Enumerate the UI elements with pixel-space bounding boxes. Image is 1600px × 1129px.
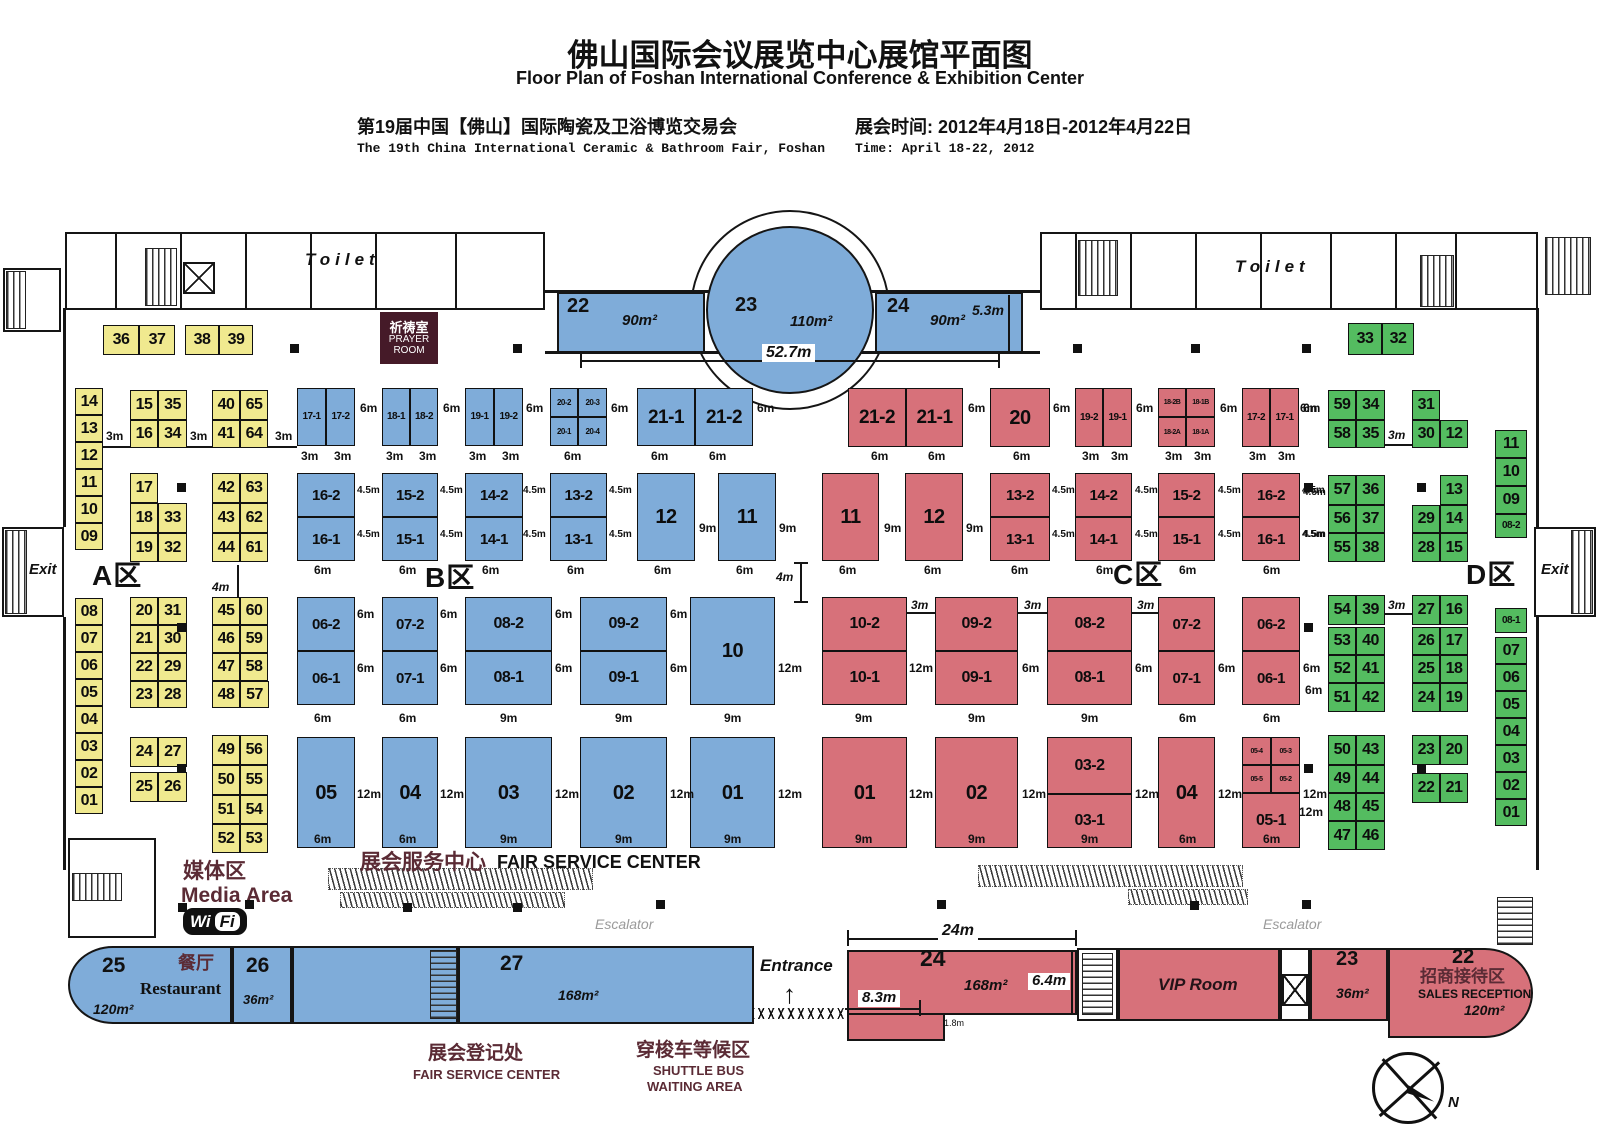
booth-b-16-1: 16-1 <box>297 517 355 561</box>
dim-tick <box>794 601 808 603</box>
prayer-room-en2: ROOM <box>393 346 424 356</box>
dimension-label: 4m <box>212 581 229 593</box>
dimension-label: 9m <box>1081 833 1098 845</box>
booth-a-54: 54 <box>240 795 268 824</box>
stairs-icon <box>1497 897 1533 945</box>
zone-c-title: C区 <box>1113 560 1163 591</box>
wall <box>1195 234 1197 308</box>
dimension-label: 6m <box>1096 564 1113 576</box>
booth-a-44: 44 <box>212 533 240 562</box>
dim-24m: 24m <box>938 922 978 940</box>
pillar <box>1073 344 1082 353</box>
hall-23b-area: 36m² <box>1336 986 1369 1001</box>
fair-name-en: The 19th China International Ceramic & B… <box>357 142 825 156</box>
hall-26-area: 36m² <box>243 993 273 1007</box>
booth-b-21-1: 21-1 <box>637 388 695 446</box>
booth-b-15-1: 15-1 <box>382 517 438 561</box>
booth-a-35: 35 <box>158 390 187 420</box>
dimension-label: 6m <box>1011 564 1028 576</box>
dimension-label: 6m <box>314 564 331 576</box>
dimension-label: 4.5m <box>357 486 380 496</box>
stairs-icon <box>1420 255 1454 307</box>
booth-a-25: 25 <box>130 772 158 802</box>
booth-a-28: 28 <box>158 681 187 708</box>
booth-a-24: 24 <box>130 737 158 767</box>
booth-c-11: 11 <box>822 473 879 561</box>
booth-b-21-2: 21-2 <box>695 388 753 446</box>
booth-a-64: 64 <box>240 420 268 448</box>
booth-a-61: 61 <box>240 533 268 562</box>
booth-d-40: 40 <box>1356 627 1385 655</box>
booth-a-12: 12 <box>75 442 103 469</box>
booth-c-13-2: 13-2 <box>990 473 1050 517</box>
entrance-label: Entrance <box>760 957 833 976</box>
dimension-label: 9m <box>966 522 983 534</box>
wall <box>1395 234 1397 308</box>
booth-d-43: 43 <box>1356 735 1385 765</box>
booth-c-19-1: 19-1 <box>1103 388 1132 447</box>
dimension-label: 6m <box>1300 402 1317 414</box>
sales-reception-cn: 招商接待区 <box>1420 968 1505 987</box>
wall <box>455 234 457 308</box>
booth-c-16-1: 16-1 <box>1242 517 1300 561</box>
wall <box>1075 234 1077 308</box>
hall-23-area: 110m² <box>790 314 832 331</box>
dimension-label: 3m <box>1024 599 1041 611</box>
booth-d-41: 41 <box>1356 655 1385 683</box>
booth-b-14-1: 14-1 <box>465 517 523 561</box>
elevator-icon <box>1282 974 1308 1006</box>
booth-b-17-2: 17-2 <box>326 388 355 446</box>
dimension-label: 6m <box>1263 564 1280 576</box>
pillar <box>513 344 522 353</box>
hall-23-circle <box>706 226 874 394</box>
dimension-label: 12m <box>1135 788 1159 800</box>
dimension-label: 6m <box>1218 662 1235 674</box>
dimension-label: 9m <box>615 712 632 724</box>
booth-a-31: 31 <box>158 597 187 625</box>
dimension-label: 6m <box>567 564 584 576</box>
dimension-label: 4.5m <box>609 486 632 496</box>
dimension-label: 4.5m <box>1303 530 1326 540</box>
dim-52-7m: 52.7m <box>762 344 815 362</box>
booth-c-17-1: 17-1 <box>1270 388 1299 447</box>
booth-d-23: 23 <box>1412 735 1440 765</box>
booth-c-12: 12 <box>905 473 963 561</box>
booth-c-10-2: 10-2 <box>822 597 907 651</box>
booth-b-09-2: 09-2 <box>580 597 667 651</box>
dimension-label: 3m <box>275 430 292 442</box>
booth-d-31: 31 <box>1412 390 1440 420</box>
dimension-label: 6m <box>357 608 374 620</box>
dimension-label: 6m <box>654 564 671 576</box>
dimension-label: 6m <box>1303 662 1320 674</box>
pillar <box>1190 901 1199 910</box>
booth-a-46: 46 <box>212 625 240 653</box>
dimension-label: 12m <box>778 662 802 674</box>
booth-a-37: 37 <box>139 325 175 355</box>
booth-b-12: 12 <box>637 473 695 561</box>
wall-right <box>1536 308 1539 527</box>
booth-d-05: 05 <box>1495 691 1527 718</box>
pillar <box>177 623 186 632</box>
booth-d-28: 28 <box>1412 533 1440 562</box>
dim-line <box>268 446 297 448</box>
media-area-cn: 媒体区 <box>183 860 246 883</box>
dimension-label: 6m <box>555 608 572 620</box>
booth-c-07-2: 07-2 <box>1158 597 1215 651</box>
booth-a-23: 23 <box>130 681 158 708</box>
booth-a-14: 14 <box>75 388 103 415</box>
hall-26-num: 26 <box>246 954 269 977</box>
hall-22-num: 22 <box>567 295 589 317</box>
booth-a-55: 55 <box>240 765 268 795</box>
booth-c-15-2: 15-2 <box>1158 473 1215 517</box>
dimension-label: 6m <box>1179 833 1196 845</box>
toilet-label-left: Toilet <box>305 251 380 270</box>
booth-a-43: 43 <box>212 503 240 533</box>
hall-24b-num: 24 <box>920 946 946 971</box>
booth-b-07-1: 07-1 <box>382 651 438 705</box>
dimension-label: 6m <box>968 402 985 414</box>
booth-c-18-2A: 18-2A <box>1158 417 1186 447</box>
booth-d-51: 51 <box>1328 683 1356 712</box>
dimension-label: 3m <box>190 430 207 442</box>
restaurant-area: 120m² <box>93 1002 133 1017</box>
booth-a-38: 38 <box>185 325 219 355</box>
dimension-label: 3m <box>301 450 318 462</box>
fair-service-center-top-en: FAIR SERVICE CENTER <box>497 853 701 873</box>
booth-c-20: 20 <box>990 388 1050 447</box>
booth-b-14-2: 14-2 <box>465 473 523 517</box>
dimension-label: 6m <box>360 402 377 414</box>
dimension-label: 3m <box>1082 450 1099 462</box>
wall <box>1130 234 1132 308</box>
compass-n: N <box>1448 1095 1459 1112</box>
booth-d-53: 53 <box>1328 627 1356 655</box>
stairs-icon <box>430 950 457 1019</box>
dimension-label: 6m <box>1179 712 1196 724</box>
fair-service-center-top-cn: 展会服务中心 <box>360 851 486 874</box>
fair-name-cn: 第19届中国【佛山】国际陶瓷及卫浴博览交易会 <box>357 118 737 138</box>
dim-line-8-3m <box>845 1008 921 1010</box>
top-corridor-left <box>65 232 545 310</box>
booth-b-08-2: 08-2 <box>465 597 552 651</box>
dimension-label: 6m <box>928 450 945 462</box>
booth-c-18-1B: 18-1B <box>1186 388 1215 417</box>
compass-icon <box>1372 1052 1444 1124</box>
dimension-label: 9m <box>615 833 632 845</box>
sales-reception-area: 120m² <box>1464 1003 1504 1018</box>
dimension-label: 9m <box>855 712 872 724</box>
booth-b-13-1: 13-1 <box>550 517 607 561</box>
booth-b-16-2: 16-2 <box>297 473 355 517</box>
dim-line-5-3m <box>1008 295 1010 352</box>
dimension-label: 9m <box>1081 712 1098 724</box>
dim-5-3m: 5.3m <box>972 303 1004 318</box>
shuttle-en1: SHUTTLE BUS <box>653 1064 744 1078</box>
pillar <box>403 903 412 912</box>
dimension-label: 3m <box>334 450 351 462</box>
dim-1-8m: 1.8m <box>944 1019 964 1029</box>
wall <box>375 234 377 308</box>
booth-a-33: 33 <box>158 503 187 533</box>
dimension-label: 4.5m <box>523 530 546 540</box>
wall <box>180 234 182 308</box>
booth-d-17: 17 <box>1440 627 1468 655</box>
booth-d-57: 57 <box>1328 475 1356 505</box>
booth-a-04: 04 <box>75 706 103 733</box>
booth-a-42: 42 <box>212 473 240 503</box>
hall-24b-area: 168m² <box>964 978 1007 995</box>
booth-b-18-2: 18-2 <box>410 388 438 446</box>
dimension-label: 4.5m <box>523 486 546 496</box>
dimension-label: 4.5m <box>440 530 463 540</box>
booth-d-30: 30 <box>1412 420 1440 448</box>
entrance-door-zigzag <box>753 1008 847 1019</box>
wifi-wi: Wi <box>190 913 211 930</box>
dimension-label: 6m <box>399 833 416 845</box>
booth-d-06: 06 <box>1495 664 1527 691</box>
booth-a-13: 13 <box>75 415 103 442</box>
dimension-label: 9m <box>699 522 716 534</box>
dimension-label: 3m <box>1194 450 1211 462</box>
booth-a-26: 26 <box>158 772 187 802</box>
hall-24-bottom-ext <box>847 1013 945 1041</box>
dimension-label: 6m <box>1022 662 1039 674</box>
sales-reception-en: SALES RECEPTION <box>1418 988 1531 1001</box>
booth-a-15: 15 <box>130 390 158 420</box>
hall-27-num: 27 <box>500 952 523 975</box>
booth-d-12: 12 <box>1440 420 1468 448</box>
dimension-label: 4.5m <box>1052 530 1075 540</box>
dimension-label: 3m <box>1249 450 1266 462</box>
booth-d-11: 11 <box>1495 430 1527 458</box>
booth-d-52: 52 <box>1328 655 1356 683</box>
dimension-label: 4.5m <box>1218 486 1241 496</box>
dimension-label: 6m <box>1179 564 1196 576</box>
booth-b-18-1: 18-1 <box>382 388 410 446</box>
booth-c-13-1: 13-1 <box>990 517 1050 561</box>
booth-a-57: 57 <box>240 681 269 708</box>
booth-b-06-1: 06-1 <box>297 651 355 705</box>
dimension-label: 6m <box>314 712 331 724</box>
booth-d-19: 19 <box>1440 683 1468 712</box>
pillar <box>1304 483 1313 492</box>
hall-23-num: 23 <box>735 294 757 316</box>
dimension-label: 6m <box>1263 712 1280 724</box>
dimension-label: 6m <box>1013 450 1030 462</box>
dimension-label: 12m <box>555 788 579 800</box>
booth-a-11: 11 <box>75 469 103 496</box>
booth-c-18-1A: 18-1A <box>1186 417 1215 447</box>
booth-b-19-2: 19-2 <box>494 388 523 446</box>
dimension-label: 9m <box>500 833 517 845</box>
booth-a-65: 65 <box>240 390 268 420</box>
booth-a-27: 27 <box>158 737 187 767</box>
wall <box>1330 234 1332 308</box>
prayer-room: 祈祷室 PRAYER ROOM <box>380 312 438 364</box>
exit-label-left: Exit <box>29 562 57 579</box>
dimension-label: 6m <box>1305 684 1322 696</box>
booth-b-09-1: 09-1 <box>580 651 667 705</box>
escalator-icon <box>978 865 1243 887</box>
booth-a-05: 05 <box>75 679 103 706</box>
pillar <box>656 900 665 909</box>
booth-d-46: 46 <box>1356 821 1385 850</box>
stairs-icon <box>72 873 122 901</box>
booth-d-47: 47 <box>1328 821 1356 850</box>
dim-line <box>103 446 130 448</box>
booth-d-26: 26 <box>1412 627 1440 655</box>
dim-line-3m <box>1385 444 1412 446</box>
booth-c-21-1: 21-1 <box>906 388 963 447</box>
booth-d-04: 04 <box>1495 718 1527 745</box>
registration-cn: 展会登记处 <box>428 1044 523 1065</box>
toilet-label-right: Toilet <box>1235 258 1310 277</box>
booth-c-08-1: 08-1 <box>1047 651 1132 705</box>
dimension-label: 9m <box>968 833 985 845</box>
dimension-label: 12m <box>1022 788 1046 800</box>
fair-time-en: Time: April 18-22, 2012 <box>855 142 1034 156</box>
exit-label-right: Exit <box>1541 562 1569 579</box>
dimension-label: 6m <box>440 662 457 674</box>
booth-a-32: 32 <box>158 533 187 562</box>
floor-plan: 佛山国际会议展览中心展馆平面图 Floor Plan of Foshan Int… <box>0 0 1600 1129</box>
booth-c-18-2B: 18-2B <box>1158 388 1186 417</box>
dimension-label: 4.5m <box>1135 530 1158 540</box>
prayer-room-cn: 祈祷室 <box>389 321 428 334</box>
booth-b-20-1: 20-1 <box>550 417 578 446</box>
hall-23b-num: 23 <box>1336 948 1358 970</box>
stairs-icon <box>1082 953 1113 1015</box>
booth-d-37: 37 <box>1356 505 1385 533</box>
booth-d-59: 59 <box>1328 390 1356 420</box>
pillar <box>1191 344 1200 353</box>
dim-tick <box>794 562 808 564</box>
hall-22b-num: 22 <box>1452 946 1474 968</box>
booth-a-53: 53 <box>240 824 268 853</box>
booth-d-49: 49 <box>1328 765 1356 793</box>
booth-d-42: 42 <box>1356 683 1385 712</box>
stairs-icon <box>1571 530 1593 614</box>
dimension-label: 9m <box>500 712 517 724</box>
booth-d-55: 55 <box>1328 533 1356 562</box>
dimension-label: 12m <box>1218 788 1242 800</box>
booth-d-44: 44 <box>1356 765 1385 793</box>
dimension-label: 6m <box>670 608 687 620</box>
booth-c-19-2: 19-2 <box>1075 388 1103 447</box>
booth-a-45: 45 <box>212 597 240 625</box>
dimension-label: 6m <box>399 564 416 576</box>
booth-c-06-1: 06-1 <box>1242 651 1300 705</box>
wall-right <box>1536 617 1539 870</box>
page-subtitle: Floor Plan of Foshan International Confe… <box>0 68 1600 89</box>
dim-line-3m <box>907 612 935 614</box>
booth-a-19: 19 <box>130 533 158 562</box>
dimension-label: 4.5m <box>1052 486 1075 496</box>
booth-c-09-2: 09-2 <box>935 597 1018 651</box>
booth-c-05-5: 05-5 <box>1242 765 1271 793</box>
booth-a-21: 21 <box>130 625 158 653</box>
booth-d-34: 34 <box>1356 390 1385 420</box>
shuttle-en2: WAITING AREA <box>647 1080 743 1094</box>
wall <box>245 234 247 308</box>
dimension-label: 9m <box>968 712 985 724</box>
booth-d-35: 35 <box>1356 420 1385 448</box>
booth-d-27: 27 <box>1412 595 1440 625</box>
booth-a-17: 17 <box>130 473 158 503</box>
dimension-label: 3m <box>106 430 123 442</box>
booth-b-20-3: 20-3 <box>578 388 607 417</box>
pillar <box>1304 764 1313 773</box>
escalator-label-left: Escalator <box>595 917 653 932</box>
booth-a-29: 29 <box>158 653 187 681</box>
booth-a-06: 06 <box>75 652 103 679</box>
booth-d-07: 07 <box>1495 637 1527 664</box>
dim-line-3m <box>1018 612 1047 614</box>
booth-a-51: 51 <box>212 795 240 824</box>
dimension-label: 6m <box>555 662 572 674</box>
dimension-label: 6m <box>839 564 856 576</box>
restaurant-cn: 餐厅 <box>178 954 214 974</box>
pillar <box>177 483 186 492</box>
booth-b-07-2: 07-2 <box>382 597 438 651</box>
dimension-label: 6m <box>357 662 374 674</box>
booth-a-41: 41 <box>212 420 240 448</box>
booth-a-34: 34 <box>158 420 187 448</box>
dimension-label: 3m <box>911 599 928 611</box>
booth-d-29: 29 <box>1412 505 1440 533</box>
registration-en: FAIR SERVICE CENTER <box>413 1068 560 1082</box>
dimension-label: 12m <box>1299 806 1323 818</box>
dimension-label: 6m <box>526 402 543 414</box>
dimension-label: 6m <box>314 833 331 845</box>
pillar <box>1302 900 1311 909</box>
hall-24-area: 90m² <box>930 313 965 330</box>
escalator-icon <box>340 892 565 908</box>
booth-c-07-1: 07-1 <box>1158 651 1215 705</box>
dimension-label: 9m <box>855 833 872 845</box>
pillar <box>1302 344 1311 353</box>
booth-d-10: 10 <box>1495 458 1527 486</box>
booth-d-03: 03 <box>1495 745 1527 772</box>
booth-b-06-2: 06-2 <box>297 597 355 651</box>
dimension-label: 6m <box>924 564 941 576</box>
dim-line-4m-aisle <box>800 563 802 603</box>
dimension-label: 12m <box>778 788 802 800</box>
dimension-label: 6m <box>611 402 628 414</box>
hall-22-area: 90m² <box>622 313 657 330</box>
dimension-label: 6m <box>651 450 668 462</box>
dimension-label: 6m <box>709 450 726 462</box>
dim-line-6-4m <box>1071 950 1073 1014</box>
booth-a-56: 56 <box>240 735 268 765</box>
booth-a-18: 18 <box>130 503 158 533</box>
booth-d-20: 20 <box>1440 735 1468 765</box>
booth-a-62: 62 <box>240 503 268 533</box>
booth-d-54: 54 <box>1328 595 1356 625</box>
dimension-label: 4m <box>776 571 793 583</box>
booth-d-08-1: 08-1 <box>1495 608 1527 633</box>
wifi-fi: Fi <box>215 912 240 931</box>
dim-8-3m: 8.3m <box>858 990 900 1007</box>
booth-a-52: 52 <box>212 824 240 853</box>
pillar <box>1304 623 1313 632</box>
dimension-label: 9m <box>884 522 901 534</box>
booth-d-56: 56 <box>1328 505 1356 533</box>
dimension-label: 12m <box>357 788 381 800</box>
